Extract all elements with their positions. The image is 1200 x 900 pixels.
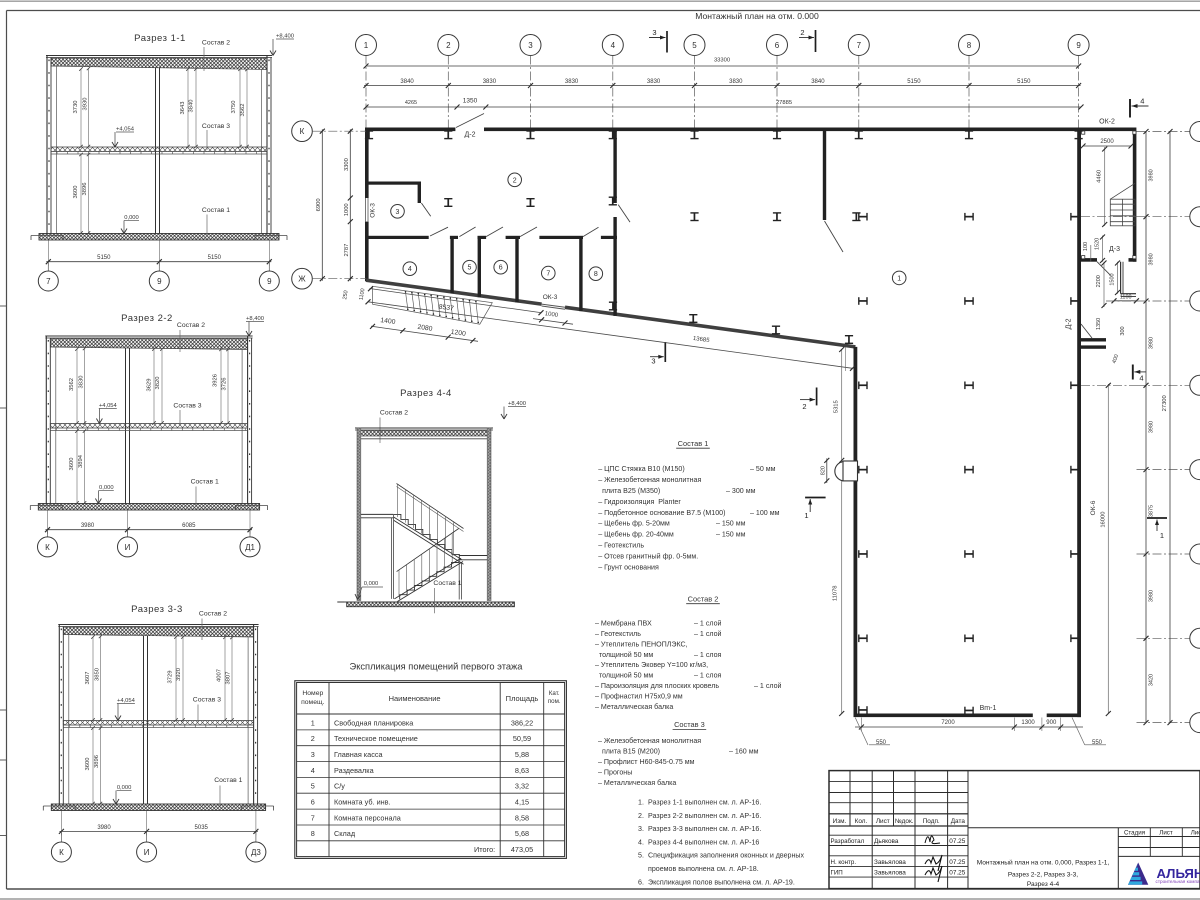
svg-text:3930: 3930 [83, 98, 89, 111]
svg-text:Раздевалка: Раздевалка [334, 766, 375, 775]
svg-text:проемов выполнена см. л. АР-18: проемов выполнена см. л. АР-18. [648, 865, 759, 873]
svg-text:– Щебень фр. 20-40мм: – Щебень фр. 20-40мм [598, 531, 674, 539]
svg-text:33300: 33300 [714, 58, 730, 64]
svg-text:6: 6 [775, 41, 780, 50]
svg-text:Разрез 3-3 выполнен см. л. АР-: Разрез 3-3 выполнен см. л. АР-16. [648, 825, 761, 833]
svg-text:Д-2: Д-2 [465, 132, 476, 139]
svg-text:3840: 3840 [189, 100, 195, 113]
svg-text:Вm-1: Вm-1 [980, 705, 997, 712]
svg-text:820: 820 [820, 466, 826, 475]
svg-text:– Прогоны: – Прогоны [598, 769, 632, 777]
svg-text:7: 7 [546, 271, 550, 278]
svg-text:Главная касса: Главная касса [334, 750, 384, 759]
svg-text:5315: 5315 [834, 400, 840, 413]
svg-text:– Подбетонное основание В7.5 (: – Подбетонное основание В7.5 (М100) [598, 509, 725, 517]
svg-text:– Грунт основания: – Грунт основания [598, 563, 659, 571]
svg-text:3: 3 [311, 750, 315, 759]
svg-text:5150: 5150 [97, 255, 111, 261]
svg-text:1: 1 [1160, 531, 1164, 540]
svg-text:50,59: 50,59 [513, 734, 531, 743]
svg-text:11078: 11078 [833, 585, 839, 601]
svg-text:5150: 5150 [907, 79, 921, 85]
svg-text:Комната уб. инв.: Комната уб. инв. [334, 798, 391, 807]
svg-text:3: 3 [652, 28, 656, 37]
svg-text:2: 2 [311, 734, 315, 743]
svg-text:5035: 5035 [195, 825, 209, 831]
svg-text:3600: 3600 [69, 458, 75, 471]
svg-text:плита В15 (М200): плита В15 (М200) [598, 748, 660, 756]
svg-text:2200: 2200 [1096, 275, 1102, 287]
svg-text:3920: 3920 [176, 668, 182, 681]
svg-text:0,000: 0,000 [124, 215, 139, 221]
svg-text:№док.: №док. [895, 818, 914, 825]
svg-text:27300: 27300 [1162, 395, 1168, 411]
svg-text:2: 2 [802, 402, 806, 411]
svg-text:3875: 3875 [1149, 505, 1155, 517]
svg-text:0,000: 0,000 [364, 581, 379, 587]
svg-text:3562: 3562 [69, 378, 75, 391]
svg-text:И: И [125, 543, 131, 552]
svg-text:3840: 3840 [811, 79, 825, 85]
svg-text:4460: 4460 [1096, 170, 1102, 183]
svg-text:строительная компания: строительная компания [1156, 879, 1200, 884]
svg-text:9: 9 [157, 277, 162, 286]
svg-text:Состав 2: Состав 2 [688, 595, 719, 604]
svg-text:– Мембрана ПВХ: – Мембрана ПВХ [595, 620, 652, 628]
svg-text:+8,400: +8,400 [276, 34, 294, 40]
svg-text:Наименование: Наименование [389, 694, 441, 703]
svg-text:Лист: Лист [876, 818, 890, 825]
svg-text:3830: 3830 [729, 79, 743, 85]
svg-text:+8,400: +8,400 [246, 316, 264, 322]
svg-text:3562: 3562 [240, 104, 246, 117]
svg-text:Разрез 3-3: Разрез 3-3 [131, 604, 183, 615]
svg-text:– Железобетонная монолитная: – Железобетонная монолитная [598, 737, 701, 745]
svg-text:– 150 мм: – 150 мм [716, 531, 746, 539]
svg-text:толщиной 50 мм: толщиной 50 мм [595, 672, 653, 680]
svg-text:толщиной 50 мм: толщиной 50 мм [595, 651, 653, 659]
svg-text:Спецификация заполнения оконны: Спецификация заполнения оконных и дверны… [648, 852, 804, 860]
svg-text:16000: 16000 [1101, 512, 1107, 528]
svg-text:Дьякова: Дьякова [874, 838, 899, 845]
svg-text:Лис: Лис [1191, 829, 1200, 836]
svg-text:3894: 3894 [78, 454, 84, 468]
svg-text:4.: 4. [638, 838, 644, 846]
svg-text:7: 7 [46, 277, 51, 286]
svg-text:7: 7 [311, 813, 315, 822]
svg-text:7200: 7200 [941, 720, 955, 726]
svg-text:К: К [59, 848, 64, 857]
svg-text:4,15: 4,15 [515, 798, 529, 807]
svg-text:Склад: Склад [334, 829, 356, 838]
svg-text:+4,054: +4,054 [117, 698, 136, 704]
svg-text:1350: 1350 [1096, 318, 1102, 330]
svg-text:– 1 слоя: – 1 слоя [694, 672, 722, 680]
svg-text:Разработал: Разработал [831, 838, 865, 845]
svg-text:3850: 3850 [95, 668, 101, 681]
svg-text:Состав 1: Состав 1 [678, 439, 709, 448]
svg-text:ОК-2: ОК-2 [1099, 119, 1115, 126]
svg-text:Дата: Дата [951, 818, 966, 825]
svg-text:2: 2 [513, 177, 517, 184]
svg-text:6085: 6085 [182, 523, 196, 529]
svg-text:Состав 1: Состав 1 [191, 479, 219, 486]
svg-text:Кат.: Кат. [549, 690, 560, 697]
svg-text:3,32: 3,32 [515, 782, 529, 791]
svg-text:3730: 3730 [73, 101, 79, 114]
svg-text:6.: 6. [638, 878, 644, 886]
svg-text:1500: 1500 [1110, 273, 1116, 285]
svg-text:– ЦПС Стяжка В10 (М150): – ЦПС Стяжка В10 (М150) [598, 465, 685, 473]
svg-text:100: 100 [1083, 242, 1089, 251]
svg-text:3980: 3980 [1149, 253, 1155, 265]
svg-text:К: К [45, 543, 50, 552]
svg-text:4265: 4265 [405, 100, 417, 106]
svg-text:0,000: 0,000 [117, 785, 132, 791]
svg-text:– 300 мм: – 300 мм [726, 487, 756, 495]
svg-text:3820: 3820 [155, 377, 161, 390]
svg-text:– 1 слой: – 1 слой [754, 682, 782, 690]
svg-text:3896: 3896 [82, 183, 88, 196]
svg-text:Монтажный план на отм. 0,000,: Монтажный план на отм. 0,000, Разрез 1-1… [977, 858, 1110, 866]
svg-text:Техническое помещение: Техническое помещение [334, 734, 418, 743]
svg-text:Разрез 4-4 выполнен см. л. АР-: Разрез 4-4 выполнен см. л. АР-16 [648, 838, 759, 846]
svg-text:Кол.: Кол. [855, 818, 868, 825]
svg-text:5150: 5150 [208, 255, 222, 261]
svg-text:Монтажный план на отм. 0.000: Монтажный план на отм. 0.000 [695, 11, 819, 21]
svg-text:8: 8 [967, 41, 972, 50]
svg-text:– Утеплитель Эковер Y=100 кг/м: – Утеплитель Эковер Y=100 кг/м3, [595, 661, 708, 669]
svg-text:3980: 3980 [1149, 169, 1155, 181]
svg-text:1100: 1100 [1120, 294, 1132, 300]
svg-text:9: 9 [267, 277, 272, 286]
svg-text:4: 4 [1140, 97, 1144, 106]
svg-text:– Утеплитель ПЕНОПЛЭКС,: – Утеплитель ПЕНОПЛЭКС, [595, 640, 688, 648]
svg-text:Состав 1: Состав 1 [202, 207, 230, 214]
svg-text:5: 5 [468, 265, 472, 272]
svg-text:– 160 мм: – 160 мм [729, 748, 759, 756]
svg-text:6: 6 [311, 798, 315, 807]
svg-text:1: 1 [804, 511, 808, 520]
svg-text:4: 4 [311, 766, 315, 775]
svg-text:5: 5 [692, 41, 697, 50]
svg-text:2787: 2787 [344, 244, 350, 257]
svg-text:3980: 3980 [81, 523, 95, 529]
svg-text:Комната персонала: Комната персонала [334, 813, 402, 822]
svg-text:3: 3 [651, 357, 655, 366]
svg-text:3807: 3807 [226, 672, 232, 685]
svg-text:1300: 1300 [1021, 720, 1035, 726]
svg-text:386,22: 386,22 [511, 718, 533, 727]
svg-text:ОК-3: ОК-3 [370, 203, 377, 218]
svg-text:ГИП: ГИП [831, 870, 843, 877]
svg-text:3830: 3830 [647, 79, 661, 85]
svg-text:07.25: 07.25 [949, 870, 965, 877]
svg-text:2: 2 [446, 41, 451, 50]
svg-text:1000: 1000 [344, 203, 350, 216]
svg-text:1350: 1350 [463, 98, 478, 105]
svg-text:4: 4 [408, 266, 412, 273]
svg-text:9: 9 [1076, 41, 1081, 50]
svg-text:Состав 2: Состав 2 [177, 322, 205, 329]
svg-text:– Профнастил Н75х0,9 мм: – Профнастил Н75х0,9 мм [595, 692, 683, 700]
svg-text:Д1: Д1 [245, 543, 255, 552]
svg-text:Разрез 4-4: Разрез 4-4 [400, 388, 452, 399]
svg-text:3830: 3830 [79, 376, 85, 389]
svg-text:– Гидроизоляция Planter: – Гидроизоляция Planter [598, 498, 681, 506]
svg-text:Н. контр.: Н. контр. [831, 859, 857, 866]
svg-text:3607: 3607 [85, 672, 91, 685]
svg-text:Лист: Лист [1159, 829, 1173, 836]
svg-text:3830: 3830 [483, 79, 497, 85]
svg-text:3840: 3840 [400, 79, 414, 85]
svg-text:Разрез 2-2, Разрез 3-3,: Разрез 2-2, Разрез 3-3, [1008, 872, 1078, 879]
svg-text:– Пароизоляция для плоских кро: – Пароизоляция для плоских кровель [595, 682, 719, 690]
svg-text:Изм.: Изм. [833, 818, 847, 825]
svg-text:5,68: 5,68 [515, 829, 529, 838]
svg-text:3926: 3926 [213, 374, 219, 387]
svg-text:4: 4 [611, 41, 616, 50]
svg-text:К: К [300, 127, 305, 136]
svg-text:Подп.: Подп. [923, 818, 940, 825]
svg-text:ОК-3: ОК-3 [543, 294, 558, 301]
svg-text:1: 1 [897, 275, 901, 282]
svg-text:27885: 27885 [776, 100, 792, 106]
svg-text:1: 1 [311, 718, 315, 727]
svg-text:Разрез 4-4: Разрез 4-4 [1027, 881, 1060, 888]
svg-text:– Профлист Н60-845-0.75 мм: – Профлист Н60-845-0.75 мм [598, 758, 695, 766]
svg-text:1: 1 [364, 41, 369, 50]
svg-text:+4,054: +4,054 [116, 127, 135, 133]
svg-text:2500: 2500 [1100, 139, 1114, 145]
svg-text:473,05: 473,05 [511, 845, 533, 854]
svg-text:6: 6 [499, 265, 503, 272]
svg-text:плита В25 (М350): плита В25 (М350) [598, 487, 660, 495]
svg-text:И: И [144, 848, 150, 857]
svg-text:Состав 2: Состав 2 [199, 611, 227, 618]
svg-text:5150: 5150 [1017, 79, 1031, 85]
svg-text:Состав 3: Состав 3 [202, 123, 230, 130]
svg-text:+8,400: +8,400 [508, 401, 526, 407]
svg-text:Д-3: Д-3 [1109, 246, 1120, 253]
svg-text:5.: 5. [638, 852, 644, 860]
svg-text:07.25: 07.25 [949, 838, 965, 845]
svg-text:пом.: пом. [548, 698, 561, 705]
svg-text:3750: 3750 [231, 101, 237, 114]
svg-text:900: 900 [1046, 720, 1057, 726]
svg-text:3643: 3643 [180, 102, 186, 115]
svg-text:3600: 3600 [85, 758, 91, 771]
svg-text:Ж: Ж [298, 275, 306, 284]
svg-text:1.: 1. [638, 799, 644, 807]
svg-text:– Отсев гранитный фр. 0-5мм.: – Отсев гранитный фр. 0-5мм. [598, 552, 698, 560]
svg-text:– Металлическая балка: – Металлическая балка [598, 779, 676, 787]
svg-text:8,63: 8,63 [515, 766, 529, 775]
svg-text:– 100 мм: – 100 мм [750, 509, 780, 517]
svg-text:– Геотекстиль: – Геотекстиль [598, 542, 644, 550]
svg-text:0,000: 0,000 [99, 485, 114, 491]
svg-text:3300: 3300 [344, 158, 350, 171]
svg-text:2.: 2. [638, 812, 644, 820]
svg-text:– 50 мм: – 50 мм [750, 465, 776, 473]
svg-text:ОК-6: ОК-6 [1090, 500, 1097, 515]
svg-text:– 150 мм: – 150 мм [716, 520, 746, 528]
svg-text:3830: 3830 [565, 79, 579, 85]
svg-text:3896: 3896 [94, 755, 100, 768]
svg-text:4007: 4007 [217, 669, 223, 682]
svg-text:3980: 3980 [1149, 337, 1155, 349]
svg-text:3: 3 [528, 41, 533, 50]
svg-text:4: 4 [1139, 374, 1143, 383]
svg-text:Завьялова: Завьялова [874, 870, 906, 877]
svg-text:помещ.: помещ. [301, 699, 325, 706]
svg-text:Состав 1: Состав 1 [214, 777, 242, 784]
svg-text:Разрез 2-2 выполнен см. л. АР-: Разрез 2-2 выполнен см. л. АР-16. [648, 812, 761, 820]
svg-text:3600: 3600 [73, 186, 79, 199]
svg-text:Стадия: Стадия [1124, 829, 1145, 836]
svg-text:3726: 3726 [222, 378, 228, 391]
svg-text:Состав 2: Состав 2 [202, 40, 230, 47]
svg-text:Состав 3: Состав 3 [193, 697, 221, 704]
svg-text:– 1 слой: – 1 слой [694, 630, 722, 638]
svg-text:7: 7 [857, 41, 862, 50]
svg-text:Состав 3: Состав 3 [173, 403, 201, 410]
svg-text:8: 8 [594, 271, 598, 278]
svg-text:– 1 слоя: – 1 слоя [694, 651, 722, 659]
svg-text:3: 3 [396, 209, 400, 216]
svg-text:5: 5 [311, 782, 315, 791]
svg-text:+4,054: +4,054 [99, 403, 118, 409]
svg-text:1520: 1520 [1094, 238, 1100, 250]
svg-text:Состав 3: Состав 3 [674, 720, 705, 729]
svg-text:Разрез 1-1 выполнен см. л. АР-: Разрез 1-1 выполнен см. л. АР-16. [648, 799, 761, 807]
svg-text:– Железобетонная монолитная: – Железобетонная монолитная [598, 476, 701, 484]
svg-text:3.: 3. [638, 825, 644, 833]
svg-text:Разрез 2-2: Разрез 2-2 [121, 313, 173, 324]
svg-text:300: 300 [1120, 326, 1126, 335]
svg-text:6900: 6900 [316, 198, 322, 211]
svg-text:Экспликация полов выполнена см: Экспликация полов выполнена см. л. АР-19… [648, 878, 795, 886]
svg-text:Итого:: Итого: [474, 845, 495, 854]
svg-text:8: 8 [311, 829, 315, 838]
svg-text:– 1 слой: – 1 слой [694, 620, 722, 628]
svg-text:– Металлическая балка: – Металлическая балка [595, 703, 673, 711]
svg-text:– Щебень фр. 5-20мм: – Щебень фр. 5-20мм [598, 520, 670, 528]
svg-text:2: 2 [800, 28, 804, 37]
svg-text:– Геотекстиль: – Геотекстиль [595, 630, 641, 638]
svg-text:3629: 3629 [147, 379, 153, 392]
svg-text:С/у: С/у [334, 782, 345, 791]
svg-text:8,58: 8,58 [515, 813, 529, 822]
svg-text:Площадь: Площадь [506, 694, 539, 703]
svg-text:3980: 3980 [97, 825, 111, 831]
svg-text:Завьялова: Завьялова [874, 859, 906, 866]
svg-text:Свободная планировка: Свободная планировка [334, 718, 414, 727]
svg-text:Д3: Д3 [251, 848, 261, 857]
svg-text:3980: 3980 [1149, 590, 1155, 602]
svg-text:Состав 1: Состав 1 [433, 580, 461, 587]
svg-text:3980: 3980 [1149, 421, 1155, 433]
svg-text:07.25: 07.25 [949, 859, 965, 866]
svg-text:Экспликация помещений первого: Экспликация помещений первого этажа [350, 662, 524, 672]
svg-text:Номер: Номер [302, 690, 323, 697]
svg-text:Состав 2: Состав 2 [380, 410, 408, 417]
svg-text:3729: 3729 [168, 671, 174, 684]
svg-text:Д-2: Д-2 [1066, 318, 1073, 329]
svg-text:Разрез 1-1: Разрез 1-1 [134, 33, 186, 44]
svg-text:3420: 3420 [1149, 674, 1155, 686]
svg-text:5,88: 5,88 [515, 750, 529, 759]
